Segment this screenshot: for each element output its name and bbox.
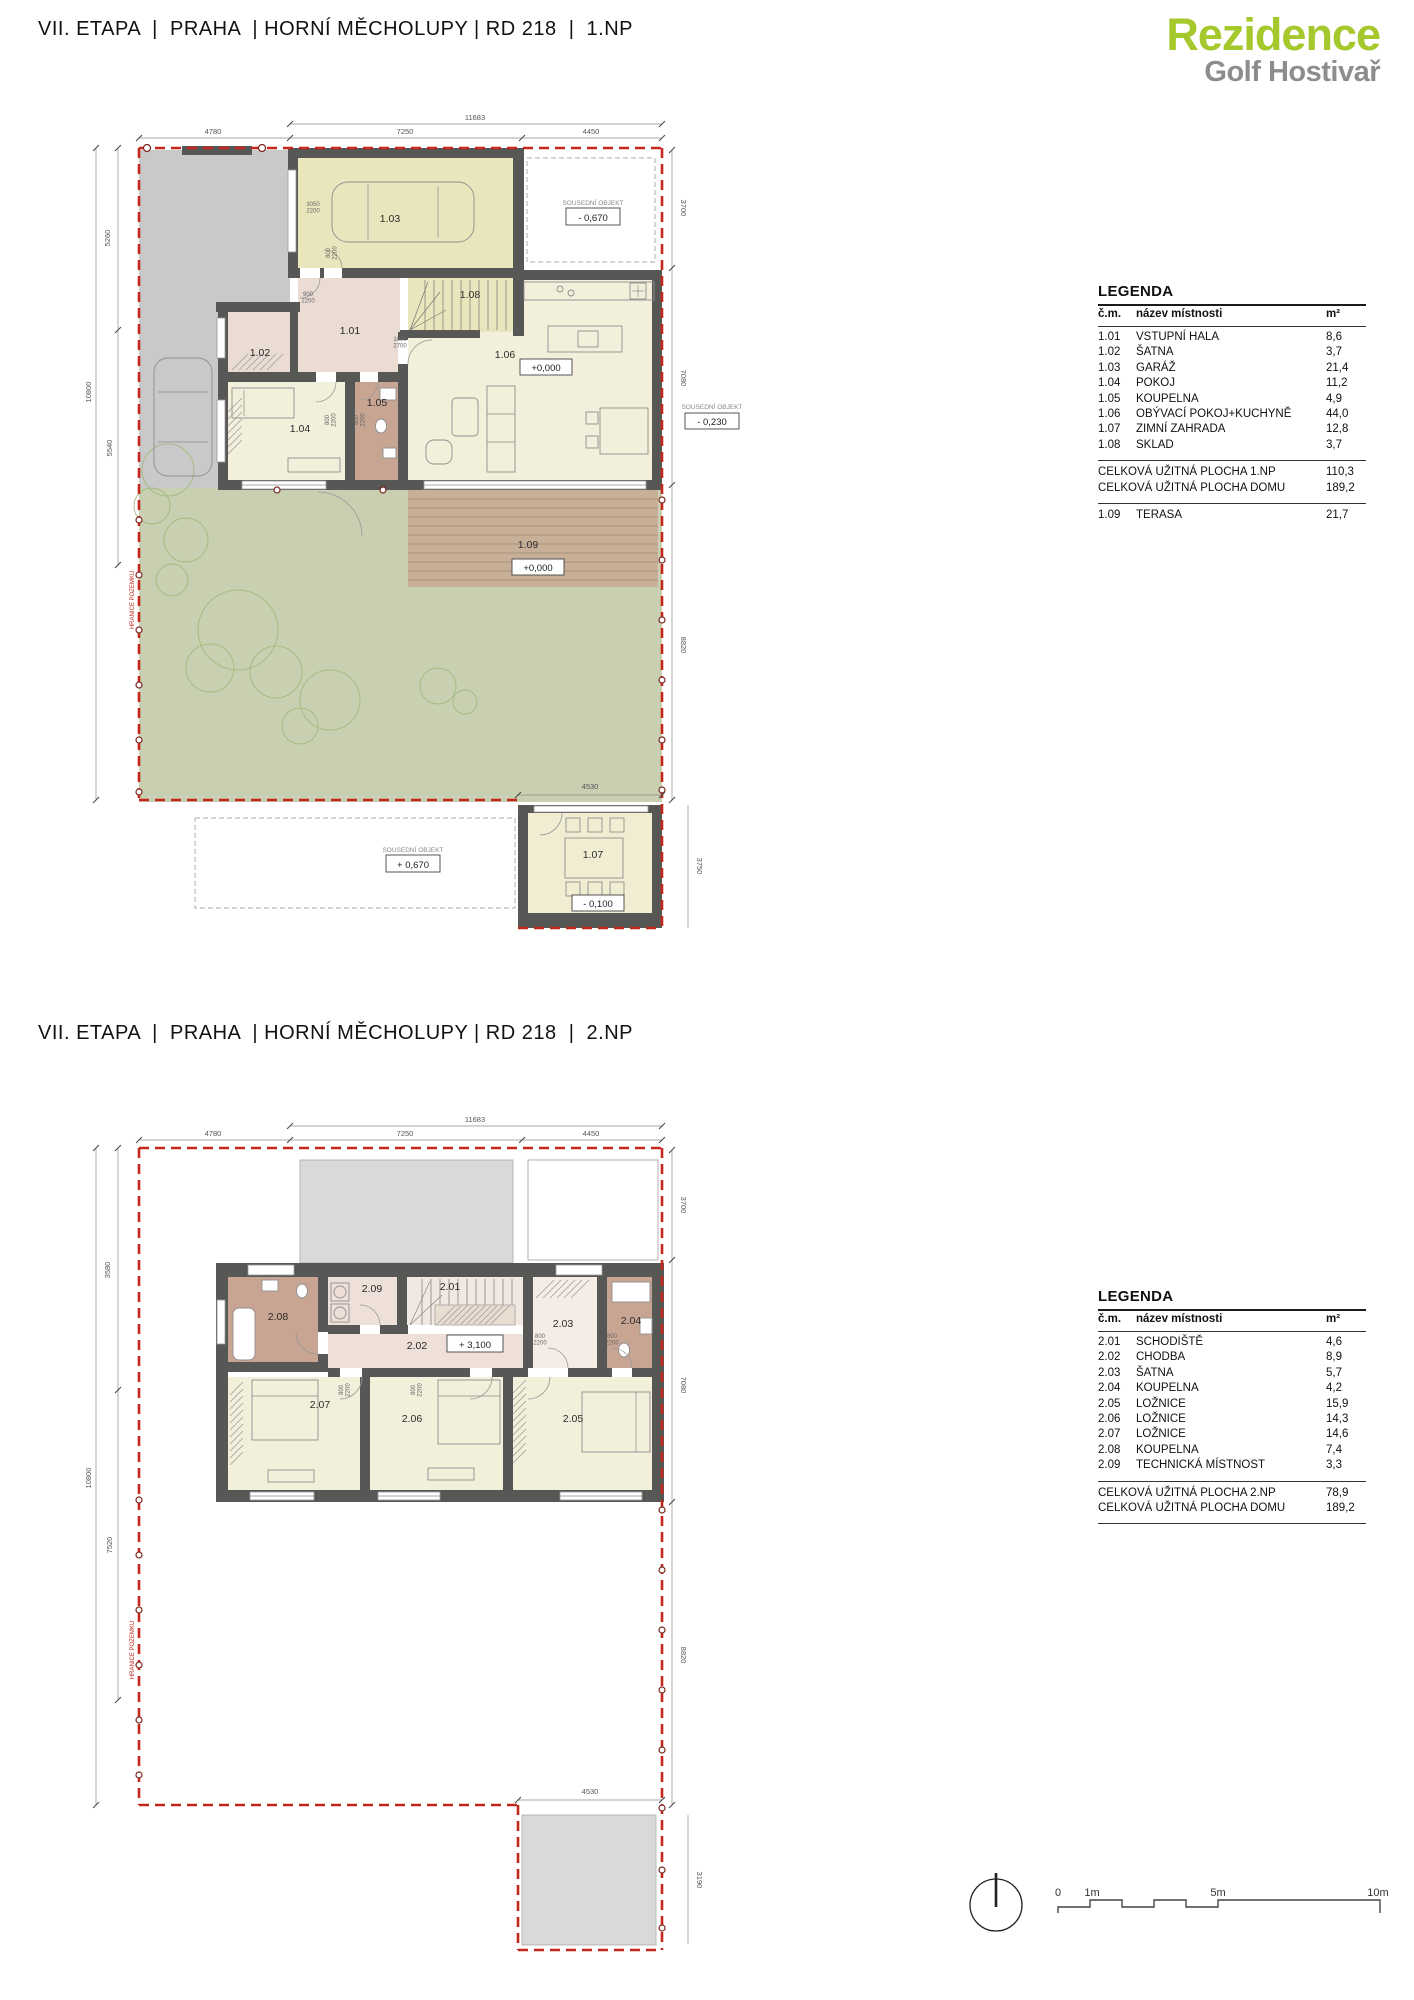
legend-row: 2.04 KOUPELNA 4,2: [1098, 1382, 1366, 1397]
total-row: CELKOVÁ UŽITNÁ PLOCHA 1.NP 110,3: [1098, 466, 1366, 481]
legend-row: 2.08 KOUPELNA 7,4: [1098, 1444, 1366, 1459]
room-loznice-2-05: [513, 1377, 652, 1490]
svg-text:- 0,670: - 0,670: [578, 213, 608, 224]
legend-2np-totals: CELKOVÁ UŽITNÁ PLOCHA 2.NP 78,9 CELKOVÁ …: [1098, 1482, 1366, 1524]
svg-text:11683: 11683: [465, 1115, 485, 1124]
svg-text:1.08: 1.08: [460, 289, 481, 301]
garage-roof: [300, 1160, 513, 1263]
svg-text:11683: 11683: [465, 113, 485, 122]
room-pokoj-1-04: [228, 382, 345, 480]
svg-text:5260: 5260: [103, 230, 112, 247]
scale-bar-labels: 01m5m10m: [1055, 1887, 1389, 1899]
svg-text:- 0,100: - 0,100: [583, 899, 613, 910]
legend-1np-header: č.m. název místnosti m²: [1098, 306, 1366, 326]
floorplan-2np-drawing: 2.012.022.032.042.052.062.072.082.09 + 3…: [80, 1085, 770, 2000]
legend-1np-heading: LEGENDA: [1098, 283, 1366, 300]
winter-garden-roof: [522, 1815, 656, 1945]
svg-text:SOUSEDNÍ OBJEKT: SOUSEDNÍ OBJEKT: [382, 845, 443, 854]
svg-text:3750: 3750: [695, 858, 704, 875]
room-satna-1-02: [228, 312, 290, 372]
floorplan-1np-drawing: 1.011.021.031.041.051.061.071.081.09 +0,…: [80, 75, 770, 955]
legend-1np-rows: 1.01 VSTUPNÍ HALA 8,6 1.02 ŠATNA 3,7 1.0…: [1098, 327, 1366, 460]
room-loznice-2-06: [370, 1377, 503, 1490]
svg-text:5540: 5540: [105, 440, 114, 457]
svg-text:4450: 4450: [583, 127, 600, 136]
svg-text:3700: 3700: [679, 1197, 688, 1214]
svg-text:3580: 3580: [103, 1262, 112, 1279]
svg-text:4780: 4780: [205, 1129, 222, 1138]
svg-text:5m: 5m: [1210, 1887, 1225, 1899]
svg-text:2.03: 2.03: [553, 1318, 574, 1330]
brand-logo-line1: Rezidence: [1166, 12, 1380, 58]
legend-1np: LEGENDA č.m. název místnosti m² 1.01 VST…: [1098, 283, 1366, 529]
page-title-2np: VII. ETAPA | PRAHA | HORNÍ MĚCHOLUPY | R…: [38, 1022, 633, 1045]
svg-text:1.05: 1.05: [367, 397, 388, 409]
svg-text:- 0,230: - 0,230: [697, 417, 727, 428]
brand-logo: Rezidence Golf Hostivař: [1166, 12, 1380, 87]
total-row: CELKOVÁ UŽITNÁ PLOCHA DOMU 189,2: [1098, 482, 1366, 497]
legend-row: 2.06 LOŽNICE 14,3: [1098, 1413, 1366, 1428]
svg-text:+ 0,670: + 0,670: [397, 860, 429, 871]
boundary-labels-2np: HRANICE POZEMKU: [130, 1621, 136, 1679]
legend-row: 1.03 GARÁŽ 21,4: [1098, 362, 1366, 377]
level-boxes-2np: + 3,100: [447, 1335, 503, 1352]
legend-row: 2.02 CHODBA 8,9: [1098, 1351, 1366, 1366]
svg-text:2.04: 2.04: [621, 1315, 642, 1327]
svg-text:10002700: 10002700: [393, 337, 407, 350]
svg-text:4450: 4450: [583, 1129, 600, 1138]
legend-row: 1.07 ZIMNÍ ZAHRADA 12,8: [1098, 423, 1366, 438]
svg-text:4530: 4530: [582, 782, 599, 791]
svg-text:2.05: 2.05: [563, 1413, 584, 1425]
svg-text:1.07: 1.07: [583, 849, 604, 861]
svg-text:8820: 8820: [679, 637, 688, 654]
total-row: CELKOVÁ UŽITNÁ PLOCHA 2.NP 78,9: [1098, 1487, 1366, 1502]
page-title-1np: VII. ETAPA | PRAHA | HORNÍ MĚCHOLUPY | R…: [38, 18, 633, 41]
legend-2np-header: č.m. název místnosti m²: [1098, 1311, 1366, 1331]
legend-1np-terasa-row: 1.09 TERASA 21,7: [1098, 504, 1366, 529]
svg-text:7250: 7250: [397, 1129, 414, 1138]
svg-text:SOUSEDNÍ OBJEKT: SOUSEDNÍ OBJEKT: [562, 198, 623, 207]
legend-2np-rows: 2.01 SCHODIŠTĚ 4,6 2.02 CHODBA 8,9 2.03 …: [1098, 1332, 1366, 1481]
neighbor-plot-south: [195, 818, 515, 908]
svg-text:2.02: 2.02: [407, 1340, 428, 1352]
svg-text:2.08: 2.08: [268, 1311, 289, 1323]
svg-text:1.01: 1.01: [340, 325, 361, 337]
scale-bar: 01m5m10m: [1040, 1878, 1400, 1923]
svg-text:2.06: 2.06: [402, 1413, 423, 1425]
svg-text:2.01: 2.01: [440, 1281, 461, 1293]
brand-logo-line2: Golf Hostivař: [1166, 58, 1380, 88]
legend-row: 2.03 ŠATNA 5,7: [1098, 1367, 1366, 1382]
legend-1np-totals: CELKOVÁ UŽITNÁ PLOCHA 1.NP 110,3 CELKOVÁ…: [1098, 461, 1366, 503]
legend-2np: LEGENDA č.m. název místnosti m² 2.01 SCH…: [1098, 1288, 1366, 1524]
svg-text:+0,000: +0,000: [531, 363, 560, 374]
legend-row: 2.07 LOŽNICE 14,6: [1098, 1428, 1366, 1443]
svg-text:1.06: 1.06: [495, 349, 516, 361]
svg-text:7520: 7520: [105, 1537, 114, 1554]
svg-text:2.09: 2.09: [362, 1283, 383, 1295]
north-arrow-icon: [955, 1865, 1045, 1960]
legend-row: 2.01 SCHODIŠTĚ 4,6: [1098, 1336, 1366, 1351]
legend-row: 1.05 KOUPELNA 4,9: [1098, 393, 1366, 408]
svg-text:3700: 3700: [679, 200, 688, 217]
svg-text:+ 3,100: + 3,100: [459, 1340, 491, 1351]
svg-text:8820: 8820: [679, 1647, 688, 1664]
svg-text:7080: 7080: [679, 370, 688, 387]
svg-text:+0,000: +0,000: [523, 563, 552, 574]
svg-text:2.07: 2.07: [310, 1399, 331, 1411]
svg-text:0: 0: [1055, 1887, 1061, 1899]
svg-text:7250: 7250: [397, 127, 414, 136]
boundary-labels-1np: HRANICE POZEMKU: [130, 571, 136, 629]
svg-text:7080: 7080: [679, 1377, 688, 1394]
legend-row: 2.05 LOŽNICE 15,9: [1098, 1398, 1366, 1413]
svg-text:3190: 3190: [695, 1872, 704, 1889]
legend-2np-heading: LEGENDA: [1098, 1288, 1366, 1305]
svg-text:30502200: 30502200: [306, 202, 320, 215]
svg-text:1.09: 1.09: [518, 539, 539, 551]
svg-text:HRANICE POZEMKU: HRANICE POZEMKU: [130, 1621, 136, 1679]
legend-row: 1.01 VSTUPNÍ HALA 8,6: [1098, 331, 1366, 346]
svg-text:10m: 10m: [1367, 1887, 1388, 1899]
svg-text:10800: 10800: [84, 382, 93, 403]
svg-text:1m: 1m: [1084, 1887, 1099, 1899]
svg-text:SOUSEDNÍ OBJEKT: SOUSEDNÍ OBJEKT: [681, 402, 742, 411]
svg-text:4530: 4530: [582, 1787, 599, 1796]
legend-row: 1.06 OBÝVACÍ POKOJ+KUCHYNĚ 44,0: [1098, 408, 1366, 423]
legend-row: 1.08 SKLAD 3,7: [1098, 439, 1366, 454]
total-row: CELKOVÁ UŽITNÁ PLOCHA DOMU 189,2: [1098, 1502, 1366, 1517]
legend-row: 2.09 TECHNICKÁ MÍSTNOST 3,3: [1098, 1459, 1366, 1474]
svg-text:1.02: 1.02: [250, 347, 271, 359]
svg-text:10800: 10800: [84, 1468, 93, 1489]
neighbor-plot-northeast-2np: [528, 1160, 658, 1260]
svg-text:1.03: 1.03: [380, 213, 401, 225]
legend-row: 1.02 ŠATNA 3,7: [1098, 346, 1366, 361]
svg-text:4780: 4780: [205, 127, 222, 136]
svg-text:1.04: 1.04: [290, 423, 311, 435]
svg-text:HRANICE POZEMKU: HRANICE POZEMKU: [130, 571, 136, 629]
legend-row: 1.04 POKOJ 11,2: [1098, 377, 1366, 392]
